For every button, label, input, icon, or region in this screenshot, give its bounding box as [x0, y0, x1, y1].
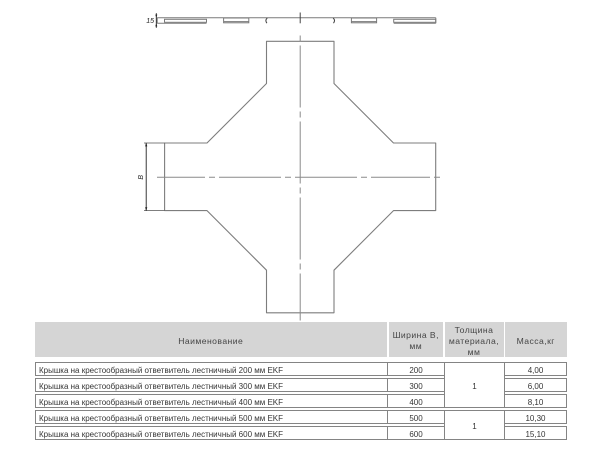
- svg-text:15: 15: [146, 18, 154, 25]
- svg-text:B: B: [138, 175, 145, 180]
